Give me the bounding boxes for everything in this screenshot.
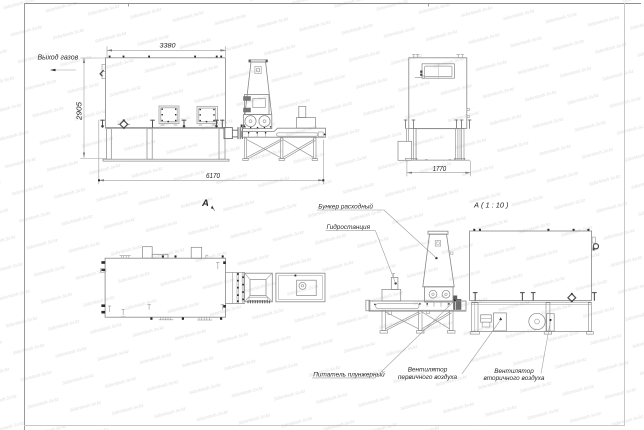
svg-text:вторичного воздуха: вторичного воздуха [484, 374, 545, 382]
svg-text:Вентилятор: Вентилятор [408, 367, 448, 374]
svg-text:первичного воздуха: первичного воздуха [398, 373, 458, 381]
svg-text:Вентилятор: Вентилятор [494, 368, 534, 375]
svg-text:Гидростанция: Гидростанция [327, 223, 371, 231]
svg-text:2905: 2905 [74, 101, 83, 121]
svg-text:A: A [201, 198, 209, 209]
svg-text:3380: 3380 [160, 43, 176, 50]
svg-text:Выход газов: Выход газов [38, 54, 79, 62]
svg-text:6170: 6170 [206, 171, 221, 180]
svg-text:1770: 1770 [433, 164, 447, 173]
svg-text:Бункер расходный: Бункер расходный [318, 202, 373, 210]
svg-text:А ( 1 : 10 ): А ( 1 : 10 ) [473, 200, 509, 209]
svg-text:Питатель плунжерный: Питатель плунжерный [313, 370, 385, 378]
